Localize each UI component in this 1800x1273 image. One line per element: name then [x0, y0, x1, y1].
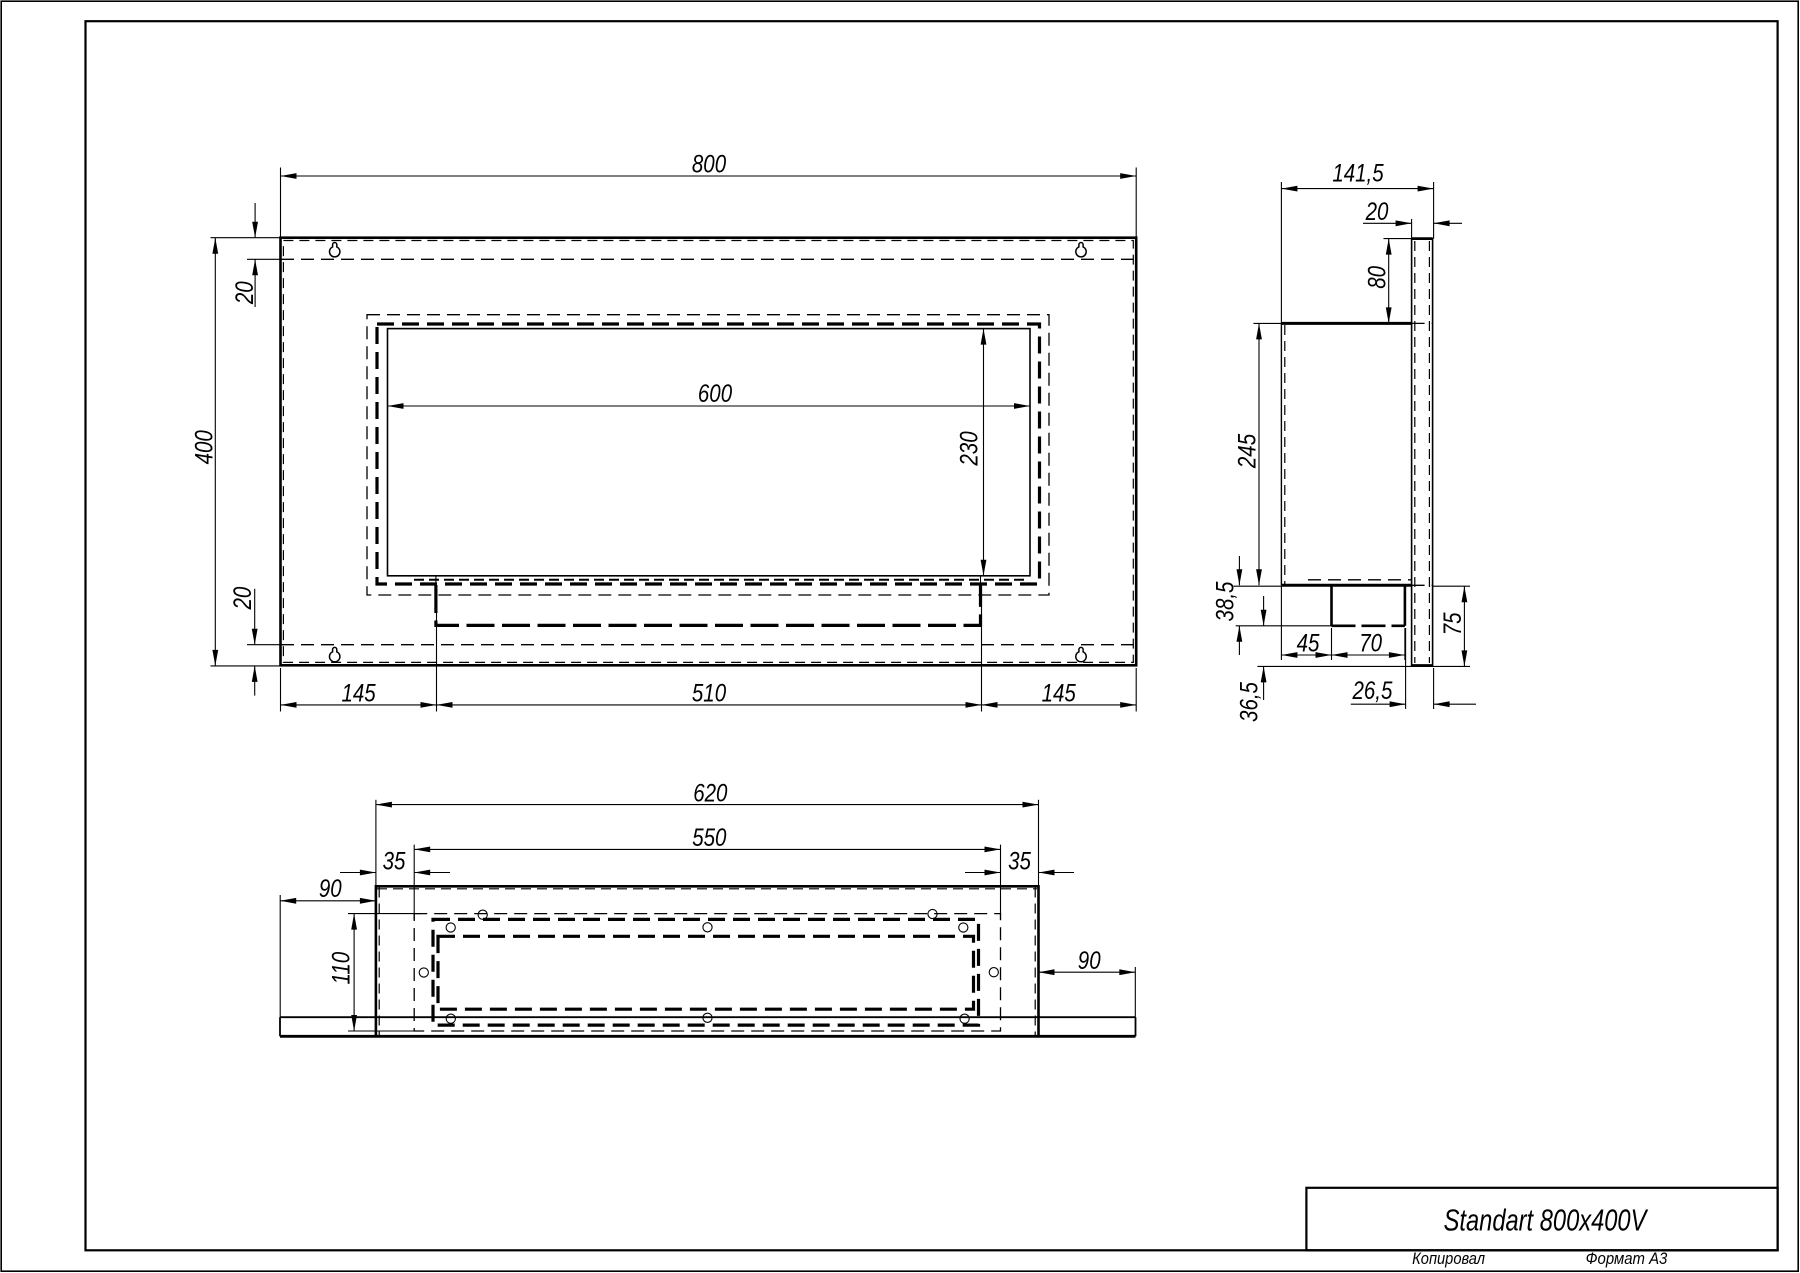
svg-text:230: 230	[955, 431, 983, 466]
svg-text:35: 35	[383, 846, 406, 874]
svg-text:110: 110	[327, 952, 355, 985]
svg-text:550: 550	[692, 823, 727, 851]
svg-text:20: 20	[1365, 197, 1389, 225]
svg-text:70: 70	[1359, 629, 1382, 657]
svg-text:800: 800	[692, 150, 727, 178]
svg-text:90: 90	[1078, 946, 1101, 974]
svg-text:36,5: 36,5	[1235, 682, 1263, 722]
svg-text:90: 90	[319, 874, 342, 902]
svg-text:600: 600	[698, 379, 733, 407]
svg-text:80: 80	[1362, 266, 1390, 289]
svg-text:Копировал: Копировал	[1412, 1250, 1485, 1268]
svg-text:141,5: 141,5	[1332, 159, 1384, 187]
svg-text:Формат А3: Формат А3	[1586, 1250, 1668, 1268]
svg-text:145: 145	[342, 679, 377, 707]
svg-text:35: 35	[1008, 846, 1031, 874]
svg-text:20: 20	[230, 281, 258, 305]
svg-text:145: 145	[1042, 679, 1077, 707]
svg-text:75: 75	[1438, 612, 1466, 635]
svg-text:620: 620	[693, 779, 728, 807]
svg-text:38,5: 38,5	[1211, 581, 1239, 621]
svg-text:245: 245	[1233, 434, 1261, 469]
svg-text:510: 510	[692, 679, 727, 707]
svg-text:20: 20	[228, 586, 256, 610]
svg-text:26,5: 26,5	[1352, 676, 1393, 704]
svg-text:Standart 800x400V: Standart 800x400V	[1444, 1203, 1649, 1238]
svg-text:400: 400	[189, 430, 217, 465]
svg-text:45: 45	[1297, 629, 1320, 657]
